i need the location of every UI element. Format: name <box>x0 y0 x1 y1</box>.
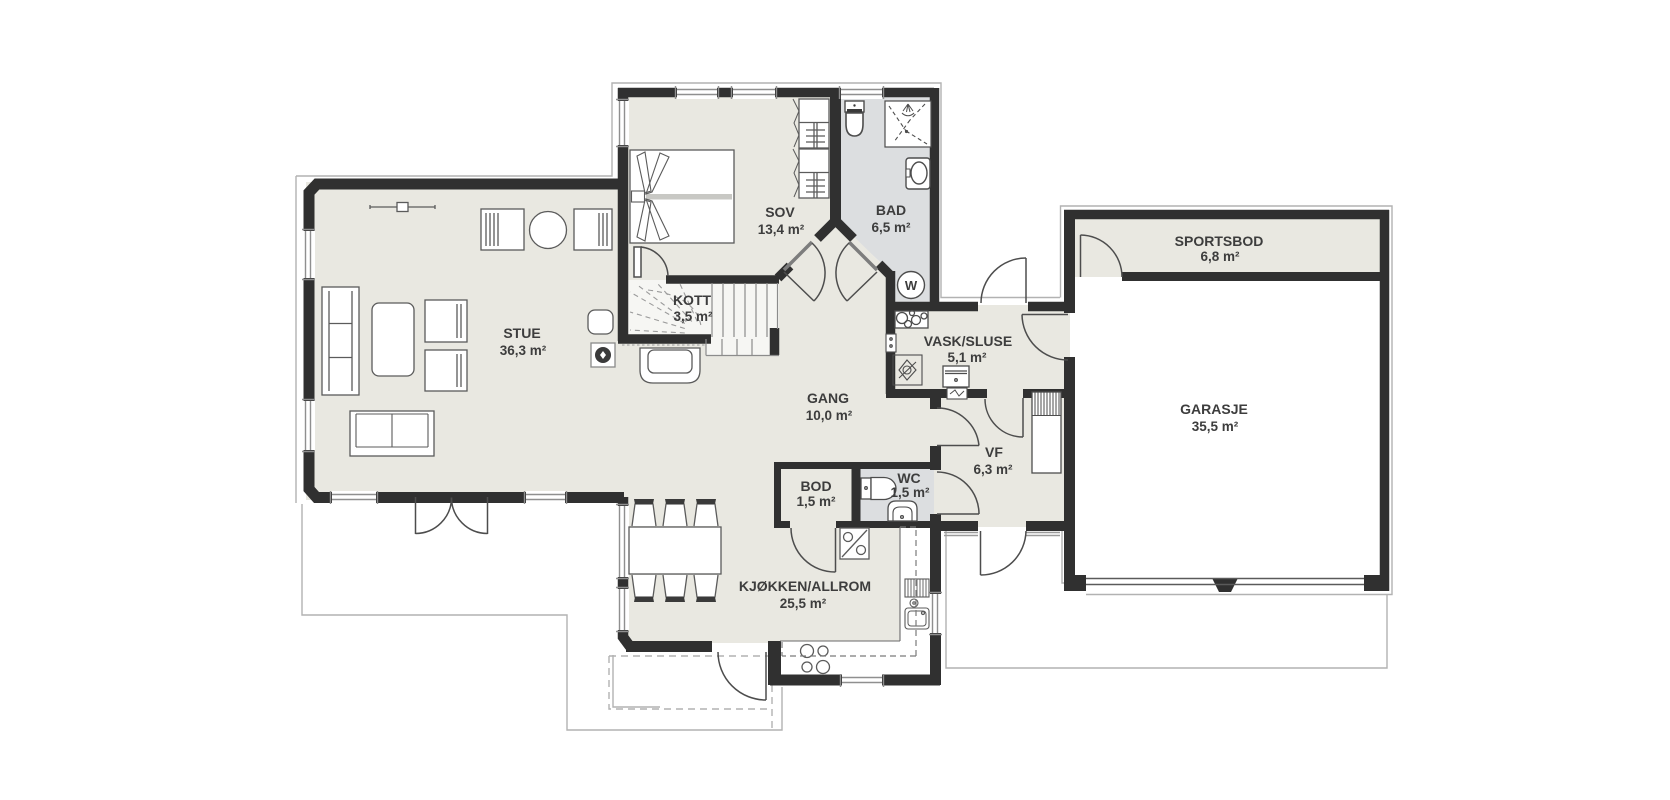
svg-text:KJØKKEN/ALLROM: KJØKKEN/ALLROM <box>739 578 871 594</box>
svg-text:W: W <box>905 278 918 293</box>
svg-text:25,5 m²: 25,5 m² <box>780 596 827 611</box>
svg-text:VASK/SLUSE: VASK/SLUSE <box>924 333 1012 349</box>
svg-text:13,4 m²: 13,4 m² <box>758 222 805 237</box>
svg-text:VF: VF <box>985 444 1003 460</box>
svg-text:10,0 m²: 10,0 m² <box>806 408 853 423</box>
svg-text:36,3 m²: 36,3 m² <box>500 343 547 358</box>
svg-text:3,5 m²: 3,5 m² <box>673 309 713 324</box>
svg-text:5,1 m²: 5,1 m² <box>947 350 987 365</box>
svg-text:BOD: BOD <box>800 478 831 494</box>
svg-text:KOTT: KOTT <box>673 292 712 308</box>
svg-text:SOV: SOV <box>765 204 795 220</box>
svg-text:GANG: GANG <box>807 390 849 406</box>
svg-text:1,5 m²: 1,5 m² <box>890 485 930 500</box>
svg-text:6,3 m²: 6,3 m² <box>973 462 1013 477</box>
svg-text:BAD: BAD <box>876 202 906 218</box>
svg-text:6,5 m²: 6,5 m² <box>871 220 911 235</box>
svg-text:GARASJE: GARASJE <box>1180 401 1248 417</box>
svg-text:WC: WC <box>897 470 920 486</box>
svg-text:SPORTSBOD: SPORTSBOD <box>1175 233 1264 249</box>
svg-text:STUE: STUE <box>503 325 540 341</box>
svg-text:6,8 m²: 6,8 m² <box>1200 249 1240 264</box>
svg-text:35,5 m²: 35,5 m² <box>1192 419 1239 434</box>
svg-text:1,5 m²: 1,5 m² <box>796 494 836 509</box>
